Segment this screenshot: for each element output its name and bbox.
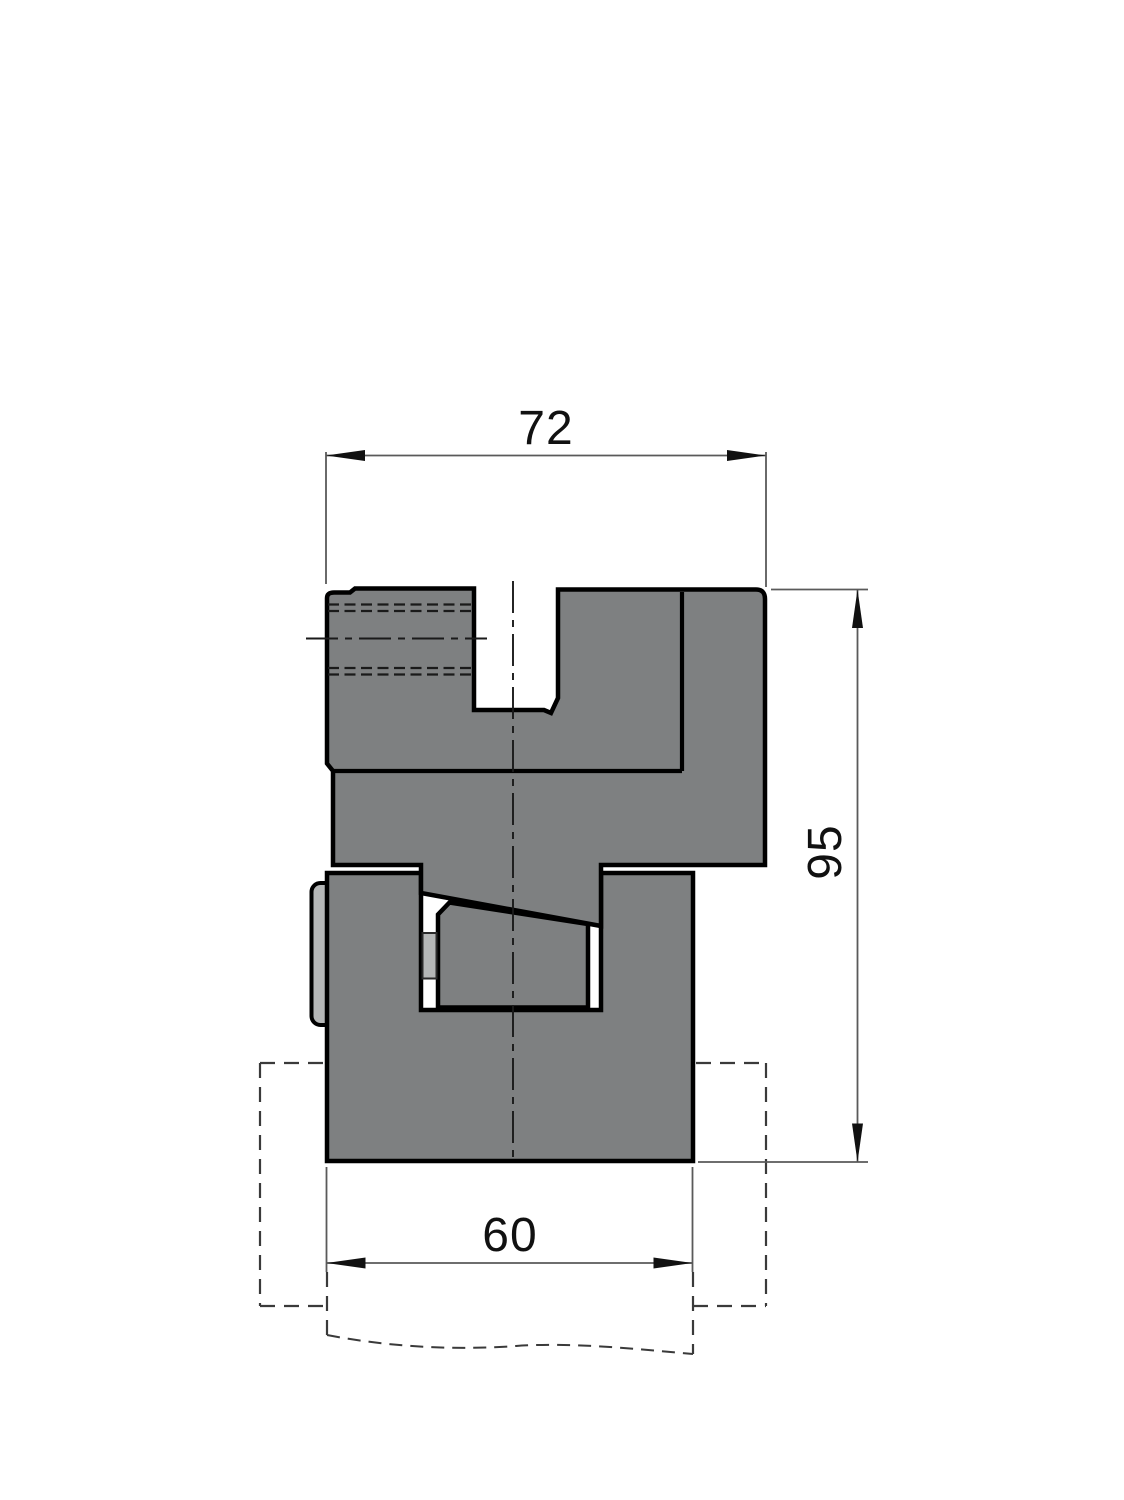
dim95-arrow-top-icon (852, 590, 863, 629)
technical-drawing-canvas: 72 95 60 (0, 0, 1124, 1500)
hidden-punch-shank (327, 1272, 693, 1354)
dim72-value: 72 (518, 402, 573, 455)
dimension-top-width: 72 (326, 402, 766, 587)
dim60-arrow-right-icon (654, 1258, 693, 1269)
dim72-arrow-left-icon (326, 450, 365, 461)
dim72-arrow-right-icon (727, 450, 766, 461)
punch-break-line (327, 1335, 693, 1354)
wedge-pin-window (423, 933, 437, 979)
dim60-arrow-left-icon (327, 1258, 366, 1269)
dim95-arrow-bottom-icon (852, 1124, 863, 1163)
dimension-bottom-width: 60 (327, 1167, 693, 1272)
dim60-value: 60 (482, 1209, 537, 1262)
dim95-value: 95 (799, 824, 852, 879)
tool-clamp-section-drawing: 72 95 60 (0, 0, 1124, 1500)
